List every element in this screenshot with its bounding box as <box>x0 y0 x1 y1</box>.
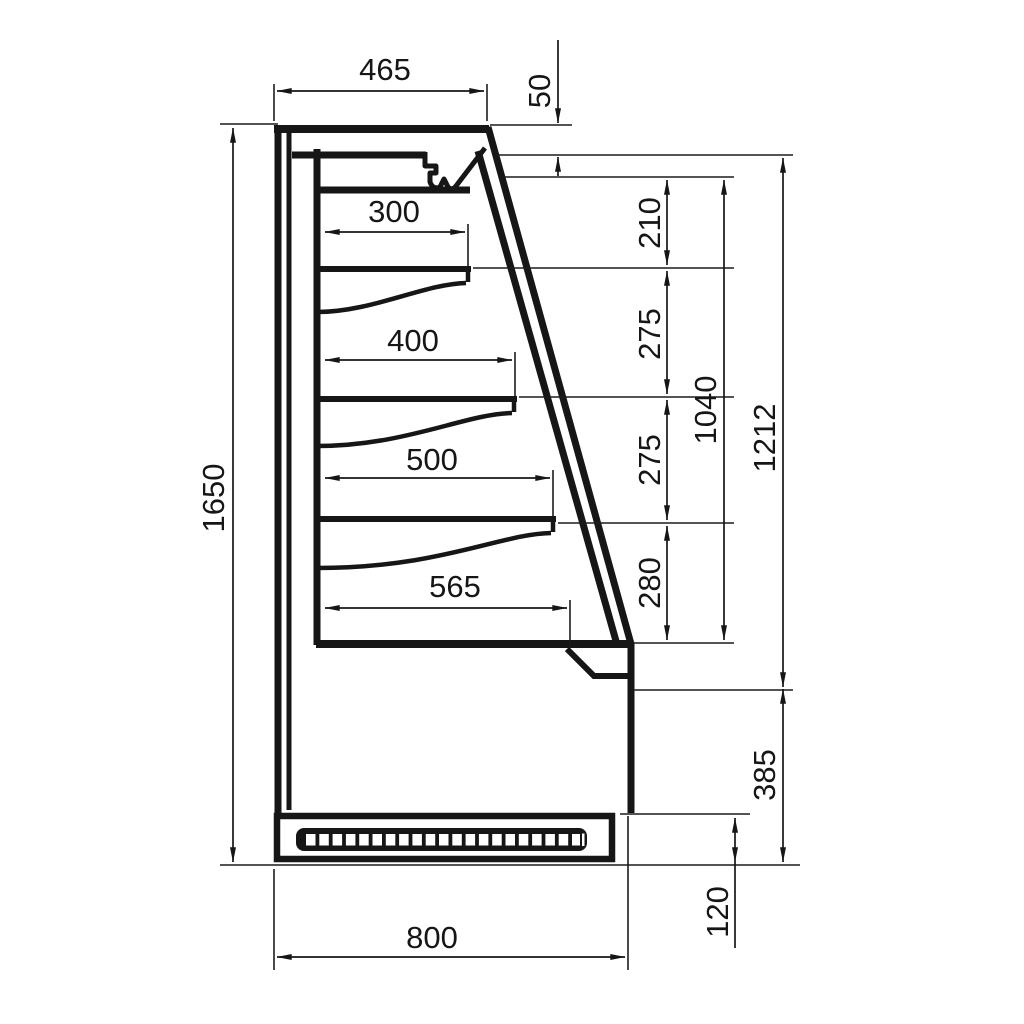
shelf-1 <box>317 269 471 312</box>
dim-label-400: 400 <box>387 323 439 358</box>
dim-label-120: 120 <box>700 886 735 938</box>
shelves <box>317 269 556 568</box>
dim-label-50: 50 <box>522 74 557 108</box>
grille-end-slit <box>582 834 585 847</box>
grille-slot <box>506 834 516 846</box>
dim-label-1040: 1040 <box>688 376 723 445</box>
cabinet-structure <box>274 126 631 859</box>
grille-slot <box>426 834 436 846</box>
grille-slot <box>412 834 422 846</box>
grille-slot <box>519 834 529 846</box>
shelf-3-underside-curve <box>317 533 551 568</box>
grille-slot <box>346 834 356 846</box>
shelf-2 <box>317 399 517 446</box>
grille-slot <box>466 834 476 846</box>
grille-slot <box>479 834 489 846</box>
dim-label-565: 565 <box>429 569 481 604</box>
grille-slot <box>359 834 369 846</box>
shelf-3 <box>317 519 556 568</box>
grille-slot <box>333 834 343 846</box>
dim-label-385: 385 <box>747 749 782 801</box>
technical-drawing-page: 465 300 400 500 565 800 50 1650 210 275 … <box>0 0 1024 1024</box>
dim-label-1212: 1212 <box>747 404 782 473</box>
dim-label-465: 465 <box>359 52 411 87</box>
grille-slot <box>492 834 502 846</box>
grille-slot <box>386 834 396 846</box>
dim-label-275a: 275 <box>632 308 667 360</box>
grille-slot <box>559 834 569 846</box>
grille-slot <box>373 834 383 846</box>
vent-grille <box>296 828 587 851</box>
grille-slot <box>319 834 329 846</box>
dim-label-800: 800 <box>406 920 458 955</box>
dim-label-210: 210 <box>632 197 667 249</box>
dim-label-1650: 1650 <box>196 464 231 533</box>
shelf-1-underside-curve <box>317 283 466 312</box>
grille-slot <box>532 834 542 846</box>
deck-front-step <box>567 649 629 676</box>
glass-front-outer <box>488 127 631 813</box>
display-case-section-drawing: 465 300 400 500 565 800 50 1650 210 275 … <box>0 0 1024 1024</box>
grille-slot <box>439 834 449 846</box>
grille-slot <box>545 834 555 846</box>
grille-slot <box>452 834 462 846</box>
dim-label-275b: 275 <box>632 434 667 486</box>
dim-label-300: 300 <box>368 194 420 229</box>
dim-label-280: 280 <box>632 557 667 609</box>
dim-label-500: 500 <box>406 442 458 477</box>
grille-slot <box>306 834 316 846</box>
grille-slot <box>399 834 409 846</box>
grille-slot <box>572 834 580 846</box>
